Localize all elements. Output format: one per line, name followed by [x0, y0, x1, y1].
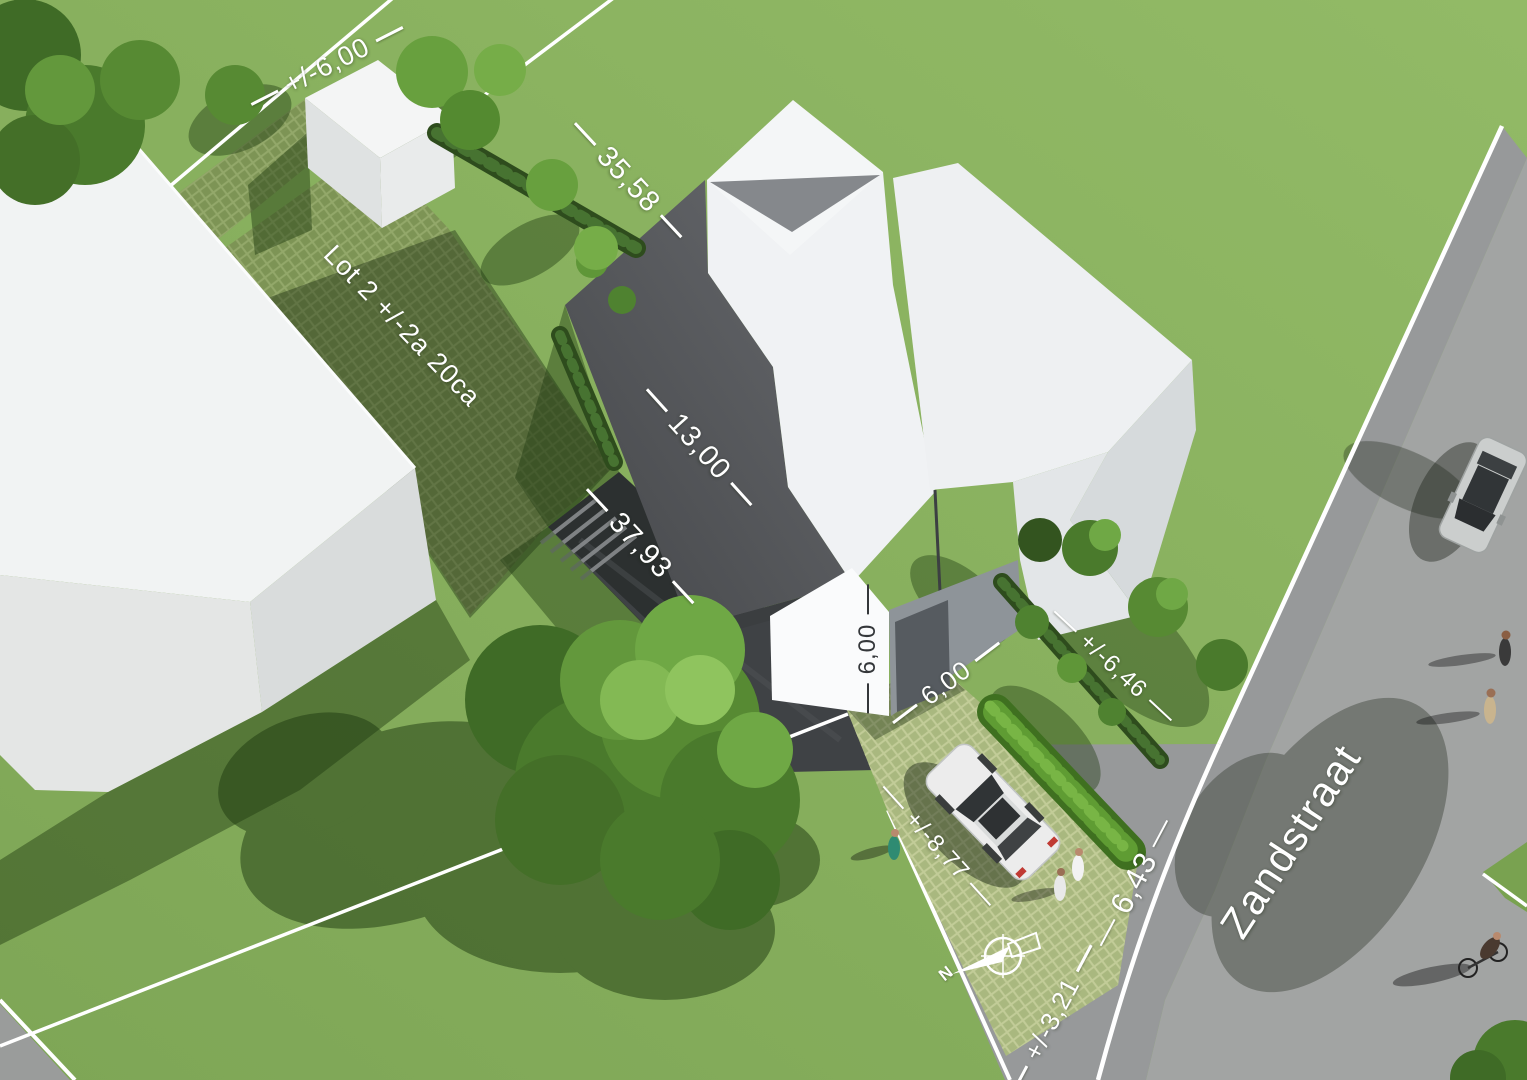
site-plan-graphics: [0, 0, 1527, 1080]
site-plan-scene: +/-6,00 35,58 Lot 2 +/-2a 20ca 13,00 37,…: [0, 0, 1527, 1080]
